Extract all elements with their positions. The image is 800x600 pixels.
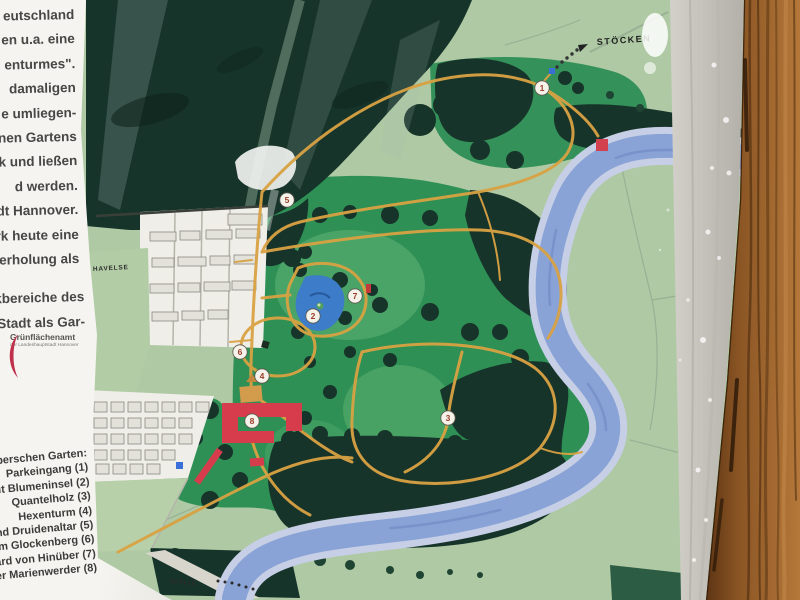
map-marker-7: 7	[348, 289, 362, 303]
logo-swoosh-icon	[4, 332, 22, 380]
red-building-north	[596, 139, 608, 151]
park-map: 12345678 STÖCKENHAVELSESEELZE	[0, 0, 800, 600]
map-marker-5: 5	[280, 193, 294, 207]
sign-paragraph-2: kbereiche desStadt als Gar-	[0, 284, 85, 339]
svg-text:4: 4	[260, 371, 265, 381]
photo-of-park-map-sign: 12345678 STÖCKENHAVELSESEELZE	[0, 0, 800, 600]
svg-text:8: 8	[250, 416, 255, 426]
paragraph-line: erholung als	[0, 247, 80, 276]
svg-text:6: 6	[238, 347, 243, 357]
map-marker-6: 6	[233, 345, 247, 359]
svg-text:2: 2	[311, 311, 316, 321]
svg-text:1: 1	[540, 83, 545, 93]
gruenflaechenamt-logo: Grünflächenamt der Landeshauptstadt Hann…	[4, 332, 79, 348]
map-marker-8: 8	[245, 414, 259, 428]
map-legend: inüberschen Garten: Parkeingang (1)n mit…	[0, 446, 98, 593]
svg-text:5: 5	[285, 195, 290, 205]
small-monument	[366, 284, 371, 293]
map-marker-1: 1	[535, 81, 549, 95]
svg-text:3: 3	[446, 413, 451, 423]
svg-text:7: 7	[353, 291, 358, 301]
map-marker-3: 3	[441, 411, 455, 425]
map-marker-4: 4	[255, 369, 269, 383]
blue-marker-north	[549, 68, 555, 74]
map-marker-2: 2	[306, 309, 320, 323]
sign-paragraph: eutschlanden u.a. eineenturmes".damalige…	[0, 3, 80, 276]
blue-marker-west	[176, 462, 183, 469]
